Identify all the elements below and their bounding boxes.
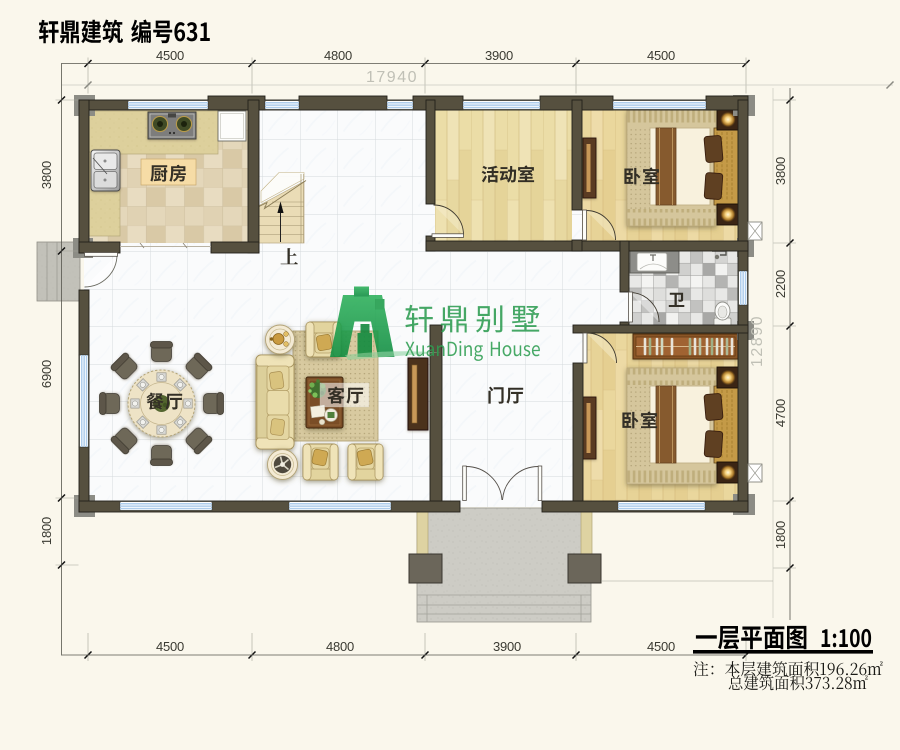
svg-text:3800: 3800 <box>39 161 54 189</box>
svg-text:3900: 3900 <box>493 639 521 654</box>
svg-text:4800: 4800 <box>326 639 354 654</box>
svg-text:4700: 4700 <box>773 399 788 427</box>
svg-text:4500: 4500 <box>156 639 184 654</box>
svg-text:3800: 3800 <box>773 157 788 185</box>
svg-text:3900: 3900 <box>485 48 513 63</box>
svg-text:4500: 4500 <box>156 48 184 63</box>
svg-text:1800: 1800 <box>39 517 54 545</box>
svg-text:2200: 2200 <box>773 270 788 298</box>
svg-text:4500: 4500 <box>647 48 675 63</box>
svg-text:4500: 4500 <box>647 639 675 654</box>
svg-text:6900: 6900 <box>39 360 54 388</box>
svg-text:4800: 4800 <box>324 48 352 63</box>
svg-text:17940: 17940 <box>366 69 418 86</box>
svg-text:12890: 12890 <box>749 315 766 367</box>
svg-text:1800: 1800 <box>773 521 788 549</box>
